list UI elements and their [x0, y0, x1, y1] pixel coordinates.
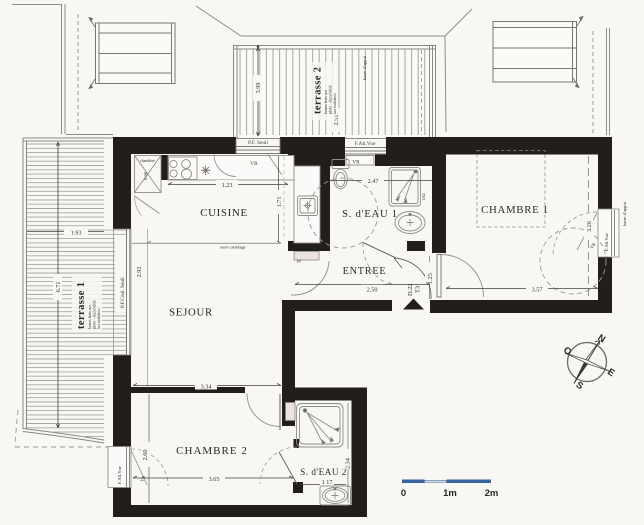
svg-text:sur isolation: sur isolation: [96, 308, 101, 329]
svg-text:SEJOUR: SEJOUR: [169, 307, 213, 319]
svg-text:F.Alt.Vue: F.Alt.Vue: [117, 466, 122, 484]
svg-text:1.62: 1.62: [421, 193, 426, 201]
svg-text:1.23: 1.23: [222, 182, 233, 189]
svg-text:CUISINE: CUISINE: [200, 207, 248, 219]
svg-text:VR: VR: [250, 161, 258, 167]
svg-text:sur isolation: sur isolation: [332, 93, 337, 114]
svg-text:2m: 2m: [485, 488, 499, 499]
svg-text:1 17: 1 17: [322, 479, 333, 486]
svg-text:1.71: 1.71: [276, 197, 283, 208]
svg-text:barre d'appui: barre d'appui: [362, 55, 367, 80]
svg-text:3.34: 3.34: [201, 384, 212, 391]
svg-text:6.71: 6.71: [55, 282, 62, 293]
svg-text:1m: 1m: [443, 488, 457, 499]
svg-text:1.93: 1.93: [71, 230, 82, 237]
svg-text:3.26: 3.26: [586, 221, 593, 232]
svg-text:CHAMBRE 2: CHAMBRE 2: [176, 445, 248, 457]
svg-text:D.22: D.22: [407, 283, 414, 296]
svg-text:barre d'appui: barre d'appui: [622, 201, 627, 226]
svg-text:0: 0: [401, 488, 406, 499]
svg-text:2.60: 2.60: [142, 450, 149, 461]
svg-text:3.65: 3.65: [209, 476, 220, 483]
svg-text:ENTREE: ENTREE: [343, 266, 387, 277]
svg-text:chaudière: chaudière: [140, 159, 155, 163]
svg-text:CHAMBRE 1: CHAMBRE 1: [481, 204, 549, 216]
svg-text:terrasse 2: terrasse 2: [313, 67, 324, 114]
svg-text:terre carrelage: terre carrelage: [220, 245, 245, 250]
svg-text:2.34: 2.34: [345, 458, 352, 469]
svg-text:3.99: 3.99: [255, 83, 262, 94]
svg-text:F.Alt.Vue: F.Alt.Vue: [355, 141, 376, 147]
svg-text:P.F.Coul. Seuil: P.F.Coul. Seuil: [120, 277, 126, 308]
svg-text:terrasse 1: terrasse 1: [76, 282, 87, 329]
svg-text:3.57: 3.57: [532, 287, 543, 294]
svg-text:0.60: 0.60: [143, 171, 148, 180]
svg-text:2.92: 2.92: [136, 267, 143, 278]
svg-text:T3: T3: [415, 286, 422, 293]
svg-text:S. d'EAU 1: S. d'EAU 1: [342, 209, 398, 220]
svg-text:VR: VR: [352, 160, 360, 166]
svg-text:P.F. Seuil: P.F. Seuil: [248, 140, 269, 146]
svg-text:1.25: 1.25: [427, 273, 434, 284]
svg-text:F.Alt.Vue: F.Alt.Vue: [604, 233, 609, 251]
svg-text:2.50: 2.50: [367, 287, 378, 294]
svg-text:S. d'EAU 2: S. d'EAU 2: [300, 467, 347, 477]
svg-text:2.47: 2.47: [368, 178, 379, 185]
